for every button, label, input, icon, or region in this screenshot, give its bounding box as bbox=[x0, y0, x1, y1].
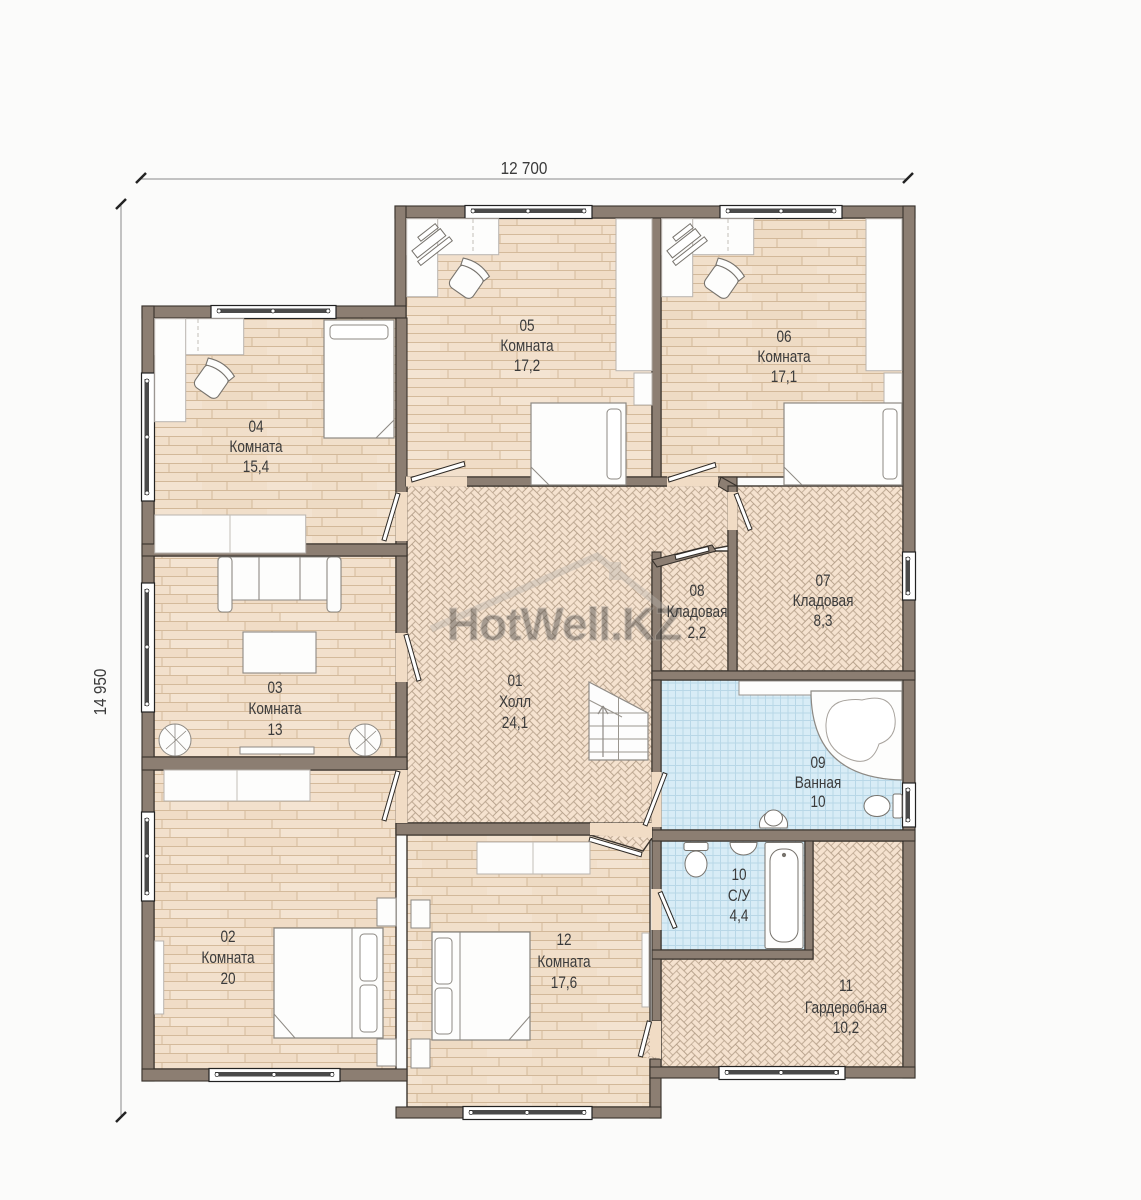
svg-text:17,2: 17,2 bbox=[514, 357, 540, 376]
svg-text:14 950: 14 950 bbox=[90, 669, 110, 716]
svg-text:07: 07 bbox=[815, 572, 830, 591]
svg-text:04: 04 bbox=[248, 418, 264, 437]
svg-text:4,4: 4,4 bbox=[730, 907, 749, 926]
svg-text:Комната: Комната bbox=[229, 438, 283, 457]
svg-text:01: 01 bbox=[507, 672, 522, 691]
svg-text:Комната: Комната bbox=[500, 337, 554, 356]
svg-text:17,1: 17,1 bbox=[771, 368, 797, 387]
svg-text:С/У: С/У bbox=[728, 887, 750, 906]
svg-text:11: 11 bbox=[839, 977, 853, 996]
svg-text:Комната: Комната bbox=[537, 953, 591, 972]
svg-text:Кладовая: Кладовая bbox=[793, 592, 854, 611]
svg-text:Комната: Комната bbox=[757, 348, 811, 367]
svg-text:8,3: 8,3 bbox=[814, 612, 833, 631]
svg-text:10,2: 10,2 bbox=[833, 1019, 859, 1038]
svg-text:10: 10 bbox=[810, 793, 825, 812]
svg-text:09: 09 bbox=[810, 754, 825, 773]
svg-text:17,6: 17,6 bbox=[551, 974, 577, 993]
svg-text:03: 03 bbox=[267, 679, 282, 698]
svg-text:08: 08 bbox=[689, 582, 704, 601]
svg-text:2,2: 2,2 bbox=[688, 624, 707, 643]
svg-text:12 700: 12 700 bbox=[501, 158, 548, 178]
svg-text:02: 02 bbox=[220, 928, 235, 947]
svg-text:Ванная: Ванная bbox=[795, 774, 842, 793]
svg-text:Комната: Комната bbox=[201, 949, 255, 968]
svg-text:Холл: Холл bbox=[499, 693, 531, 712]
svg-text:13: 13 bbox=[267, 721, 282, 740]
svg-text:12: 12 bbox=[556, 931, 571, 950]
svg-text:15,4: 15,4 bbox=[243, 458, 270, 477]
svg-text:10: 10 bbox=[731, 866, 746, 885]
svg-text:Кладовая: Кладовая bbox=[667, 603, 728, 622]
svg-text:Комната: Комната bbox=[248, 700, 302, 719]
svg-text:Гардеробная: Гардеробная bbox=[805, 999, 887, 1018]
svg-text:05: 05 bbox=[519, 317, 534, 336]
svg-text:24,1: 24,1 bbox=[502, 714, 528, 733]
svg-text:HotWell.KZ: HotWell.KZ bbox=[447, 598, 681, 650]
svg-text:06: 06 bbox=[776, 328, 791, 347]
svg-text:20: 20 bbox=[220, 970, 235, 989]
